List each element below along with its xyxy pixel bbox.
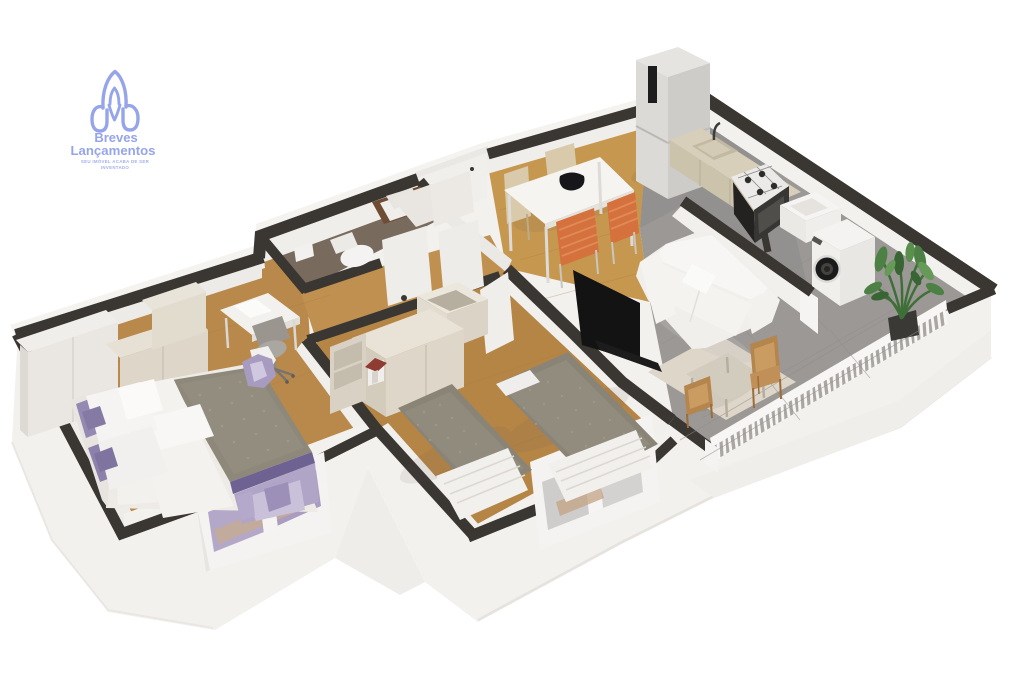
- svg-text:SEU IMÓVEL ACABA DE SER: SEU IMÓVEL ACABA DE SER: [81, 159, 150, 164]
- svg-text:Lançamentos: Lançamentos: [70, 143, 155, 158]
- svg-text:INVENTADO: INVENTADO: [101, 165, 130, 170]
